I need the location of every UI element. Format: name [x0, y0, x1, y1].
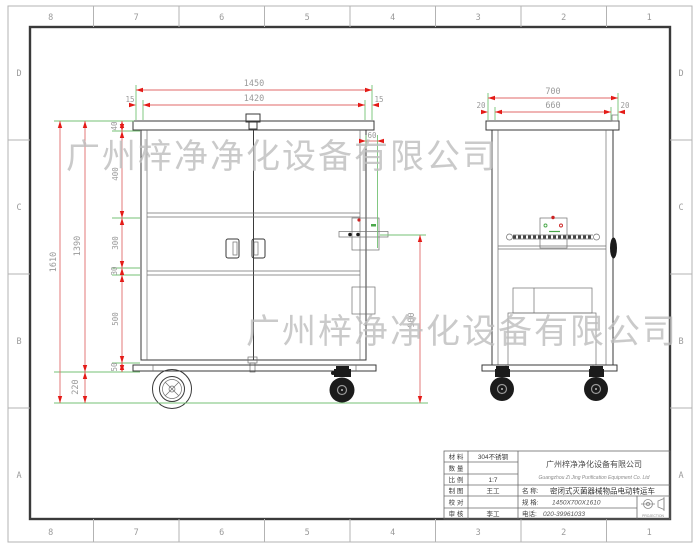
zone-labels-right: D C B A [678, 69, 683, 481]
zone-row: B [16, 337, 21, 347]
drawing-sheet: 8 7 6 5 4 3 2 1 8 7 6 5 4 3 2 1 D C B A … [0, 0, 700, 548]
spec-value: 1450X700X1610 [552, 500, 601, 507]
push-handle [507, 234, 600, 240]
dim-chain-50: 50 [110, 362, 119, 372]
zone-labels-left: D C B A [16, 69, 21, 481]
company-name-cn: 广州梓净净化设备有限公司 [546, 459, 642, 469]
dim-edge-right: 15 [374, 95, 383, 104]
watermark-upper: 广州梓净净化设备有限公司 [66, 138, 498, 176]
zone-row: C [16, 203, 21, 213]
zone-col: 6 [219, 528, 224, 538]
zone-col: 3 [476, 13, 481, 23]
zone-row: A [16, 471, 21, 481]
zone-col: 8 [48, 13, 53, 23]
battery-box [352, 287, 375, 314]
side-view [482, 115, 619, 401]
dim-depth-inner: 660 [545, 101, 560, 111]
front-right-caster [330, 366, 355, 403]
zone-row: A [678, 471, 683, 481]
dim-edge-left: 15 [125, 95, 134, 104]
zone-col: 3 [476, 528, 481, 538]
lid-hinge [612, 115, 618, 121]
scale-label: 比 例 [449, 475, 464, 484]
dim-chain-30: 30 [110, 266, 119, 276]
projection-label: PROJECTION [642, 514, 664, 518]
dim-height-body: 1390 [73, 236, 83, 256]
zone-row: D [16, 69, 21, 79]
phone-value: 020-39961033 [543, 511, 585, 518]
scale-value: 1:7 [488, 477, 497, 484]
dim-width-overall: 1450 [244, 79, 264, 89]
dim-chain-300: 300 [111, 236, 120, 250]
edge-grip [610, 238, 617, 259]
zone-col: 4 [390, 528, 395, 538]
dim-height-overall: 1610 [49, 252, 59, 272]
audit-label: 审 核 [449, 509, 464, 518]
control-panel [540, 216, 567, 248]
zone-col: 8 [48, 528, 53, 538]
zone-col: 4 [390, 13, 395, 23]
check-label: 校 对 [449, 498, 464, 507]
dimensions-side: 700 660 20 20 [476, 87, 630, 120]
title-block: 材 料 304不锈钢 数 量 比 例 1:7 制 图 王工 校 对 审 核 李工… [444, 451, 670, 519]
zone-row: C [678, 203, 683, 213]
zone-col: 2 [561, 528, 566, 538]
material-label: 材 料 [449, 452, 464, 461]
quantity-label: 数 量 [449, 464, 464, 473]
side-control-box [339, 218, 388, 250]
draft-value: 王工 [487, 487, 501, 495]
door-handles [226, 239, 265, 258]
lid-latch [246, 114, 260, 129]
zone-col: 5 [305, 13, 310, 23]
zone-col: 2 [561, 13, 566, 23]
phone-label: 电话: [522, 509, 537, 518]
dim-chain-40: 40 [110, 121, 119, 131]
dim-depth-edge-left: 20 [476, 101, 486, 110]
dim-width-inner: 1420 [244, 94, 264, 104]
dim-depth-overall: 700 [545, 87, 560, 97]
zone-col: 7 [134, 528, 139, 538]
material-value: 304不锈钢 [478, 452, 509, 461]
cad-canvas: 8 7 6 5 4 3 2 1 8 7 6 5 4 3 2 1 D C B A … [0, 0, 700, 548]
zone-col: 5 [305, 528, 310, 538]
dim-chain-500: 500 [111, 312, 120, 326]
spec-label: 规 格: [522, 498, 539, 507]
zone-col: 1 [647, 528, 652, 538]
zone-col: 7 [134, 13, 139, 23]
watermark-lower: 广州梓净净化设备有限公司 [246, 313, 678, 351]
company-name-en: Guangzhou Zi Jing Purification Equipment… [539, 475, 650, 481]
projection-symbol-icon: PROJECTION [641, 497, 664, 518]
zone-row: B [678, 337, 683, 347]
zone-row: D [678, 69, 683, 79]
zone-col: 6 [219, 13, 224, 23]
audit-value: 李工 [487, 509, 501, 518]
dim-depth-edge-right: 20 [620, 101, 630, 110]
product-name-value: 密闭式灭菌器械物品电动转运车 [550, 486, 655, 496]
product-name-label: 名 称: [522, 486, 539, 495]
zone-col: 1 [647, 13, 652, 23]
draft-label: 制 图 [449, 486, 464, 495]
dim-height-wheel: 220 [71, 379, 81, 394]
